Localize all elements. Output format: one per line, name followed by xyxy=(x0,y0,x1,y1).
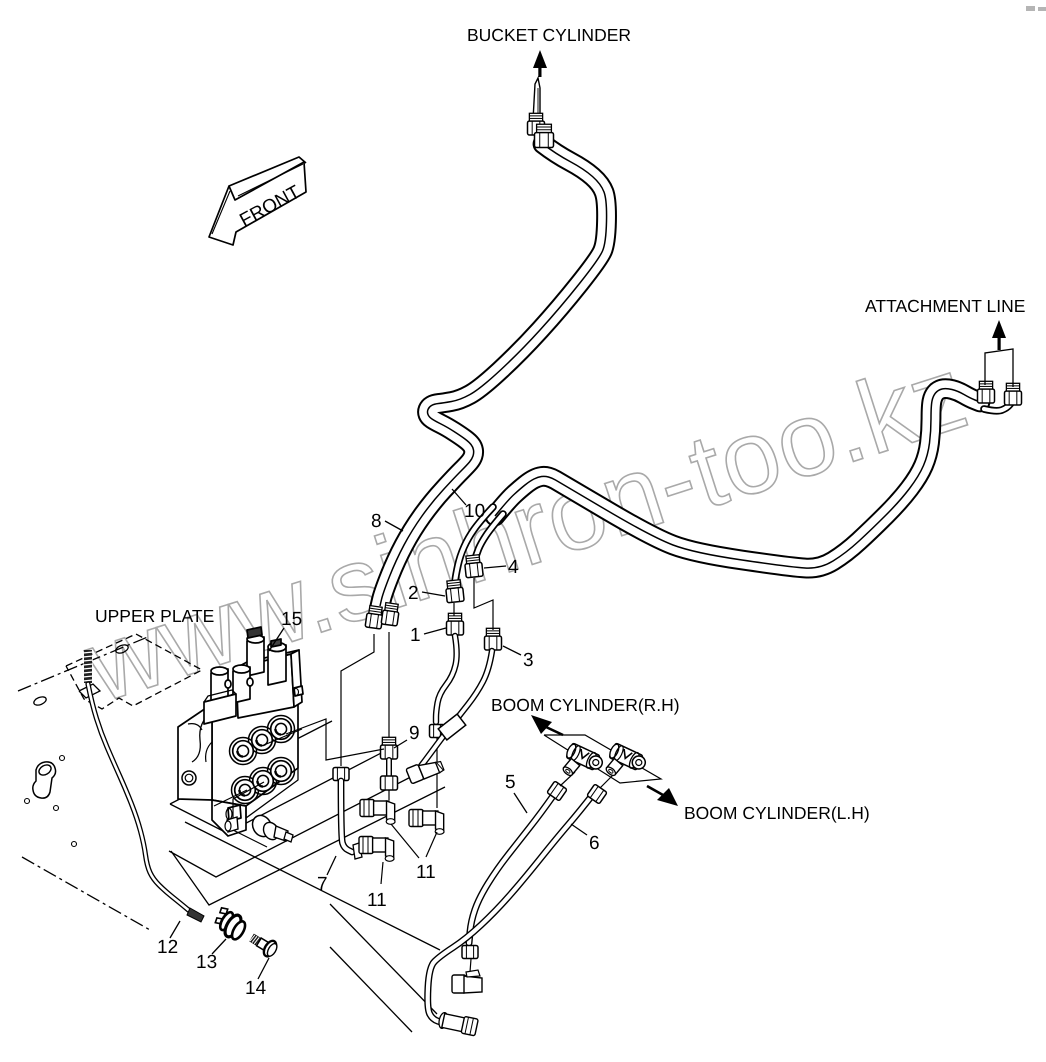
svg-text:2: 2 xyxy=(408,583,419,604)
svg-text:10: 10 xyxy=(464,501,485,522)
svg-text:8: 8 xyxy=(371,511,382,532)
svg-text:3: 3 xyxy=(523,650,534,671)
svg-text:BOOM CYLINDER(L.H): BOOM CYLINDER(L.H) xyxy=(684,803,870,823)
svg-text:7: 7 xyxy=(317,874,328,895)
svg-text:UPPER PLATE: UPPER PLATE xyxy=(95,606,214,626)
svg-text:13: 13 xyxy=(196,952,217,973)
svg-text:1: 1 xyxy=(410,625,421,646)
svg-text:ATTACHMENT LINE: ATTACHMENT LINE xyxy=(865,296,1025,316)
svg-text:BOOM CYLINDER(R.H): BOOM CYLINDER(R.H) xyxy=(491,695,680,715)
svg-text:15: 15 xyxy=(281,609,302,630)
svg-text:9: 9 xyxy=(409,723,420,744)
svg-text:6: 6 xyxy=(589,833,600,854)
svg-text:BUCKET CYLINDER: BUCKET CYLINDER xyxy=(467,25,631,45)
svg-text:14: 14 xyxy=(245,978,267,999)
svg-text:11: 11 xyxy=(367,890,387,911)
svg-text:12: 12 xyxy=(157,937,178,958)
svg-text:4: 4 xyxy=(508,557,519,578)
svg-text:5: 5 xyxy=(505,772,516,793)
svg-text:11: 11 xyxy=(416,862,436,883)
